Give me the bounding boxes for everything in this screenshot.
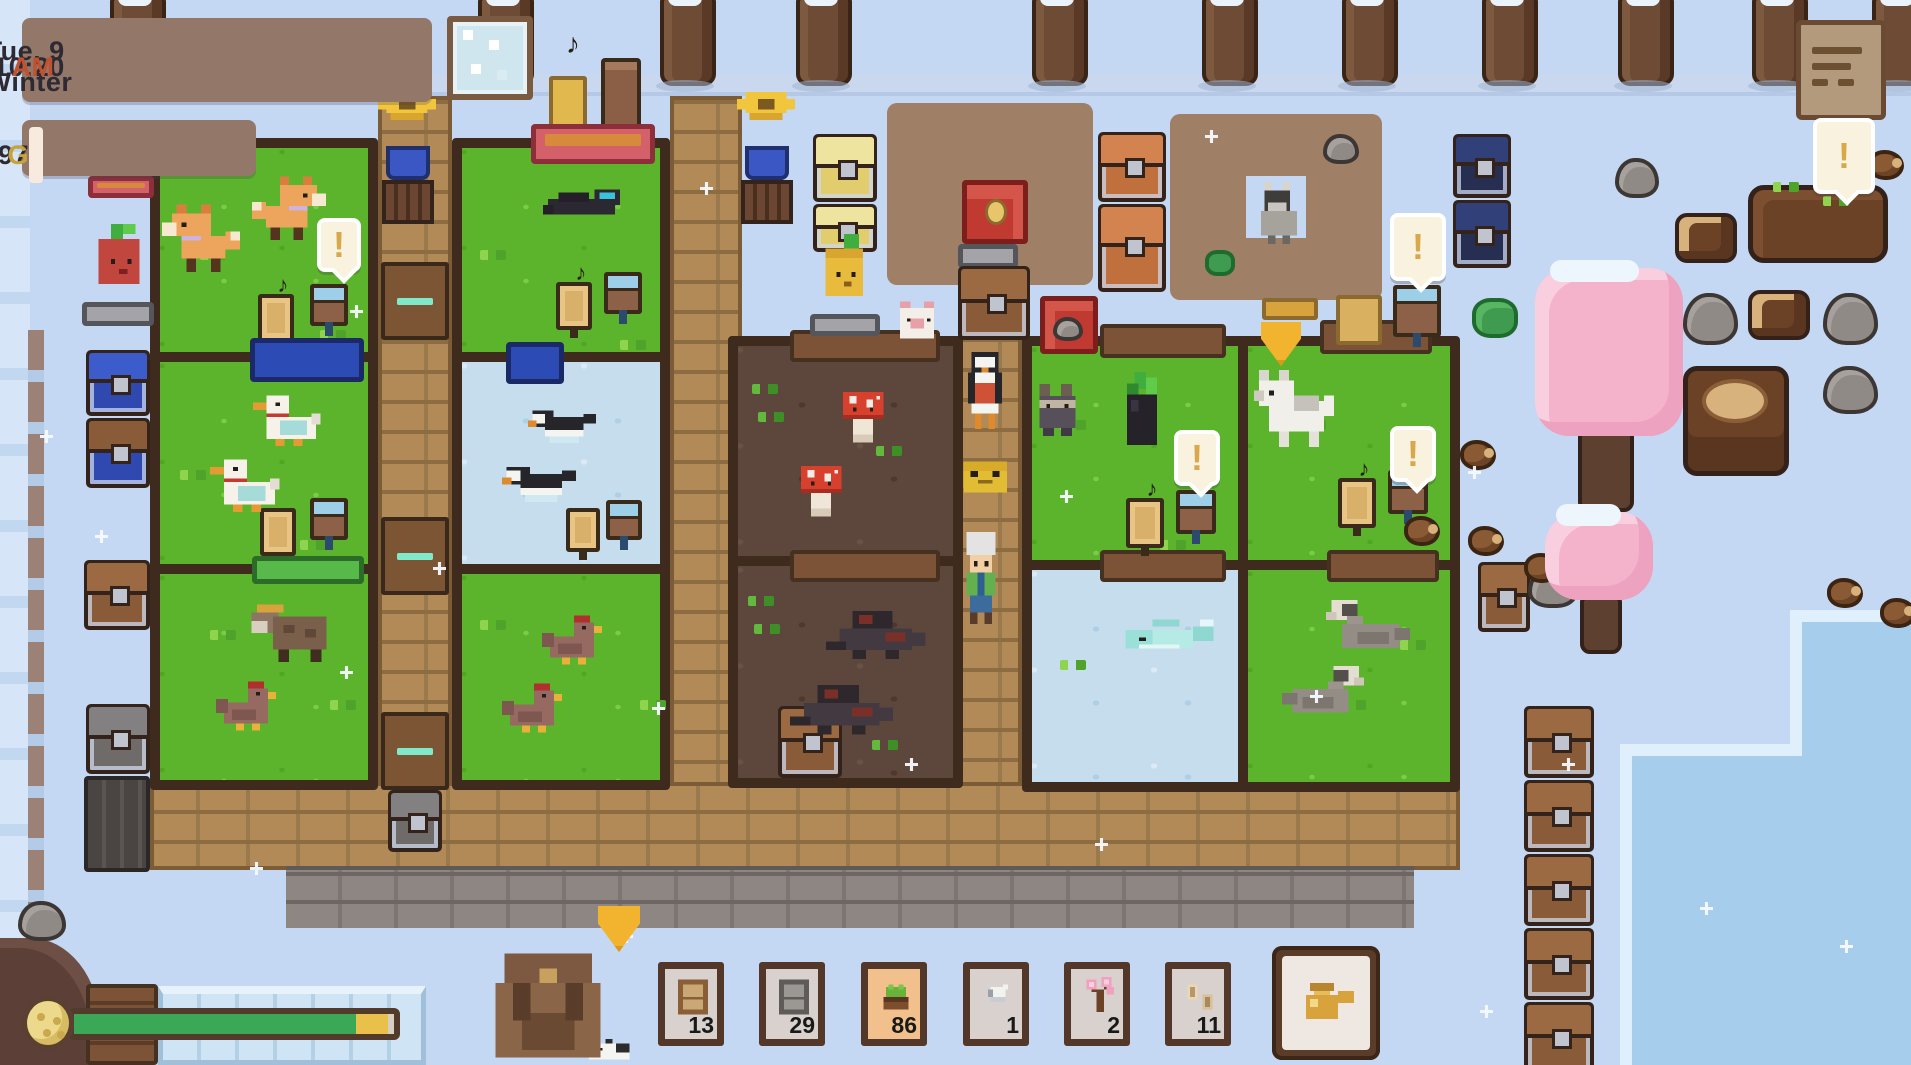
stone-door[interactable] — [84, 776, 150, 872]
water-dispenser[interactable] — [310, 284, 348, 326]
fence-gate[interactable] — [381, 712, 449, 790]
chest[interactable] — [1098, 132, 1166, 202]
mushroom-creature[interactable] — [836, 388, 890, 450]
watering-can-icon — [1294, 971, 1358, 1035]
water-dispenser[interactable] — [310, 498, 348, 540]
hotbar-slot-2[interactable]: 29 — [759, 962, 825, 1046]
dark-dragon[interactable] — [790, 676, 900, 748]
fence-gate[interactable] — [381, 262, 449, 340]
feed-trough-red[interactable] — [88, 176, 154, 198]
currency-label: G — [7, 140, 29, 171]
cherry-blossom-tree[interactable] — [1535, 268, 1683, 436]
chicken[interactable] — [538, 612, 602, 668]
hotbar-slot-4[interactable]: 1 — [963, 962, 1029, 1046]
cherry-tree-trunk — [1578, 424, 1634, 512]
rock — [1615, 158, 1659, 198]
acorn — [1404, 516, 1440, 546]
acorn — [1468, 526, 1504, 556]
game-viewport: ♪ ! ♪ ♪ — [0, 0, 1911, 1065]
alert-bubble[interactable]: ! — [317, 218, 361, 272]
grass-tuft — [752, 384, 778, 394]
black-critter[interactable] — [543, 180, 625, 230]
hotbar-slot-3[interactable]: 86 — [861, 962, 927, 1046]
sparkle — [95, 530, 108, 543]
pen-mushrooms — [728, 336, 963, 568]
radish-creature[interactable] — [86, 224, 152, 304]
pineapple-cat[interactable] — [814, 234, 874, 310]
duck[interactable] — [210, 452, 284, 512]
chest[interactable] — [1453, 200, 1511, 268]
grass-tuft — [754, 624, 780, 634]
music-note: ♪ — [566, 28, 580, 60]
water-dispenser[interactable] — [606, 500, 642, 540]
planter-stand — [382, 180, 434, 224]
goose[interactable] — [1282, 662, 1364, 724]
grass-tuft — [180, 470, 206, 480]
fence-gate[interactable] — [381, 517, 449, 595]
chest[interactable] — [1098, 204, 1166, 292]
gold-tray — [1262, 298, 1318, 320]
acorn — [1827, 578, 1863, 608]
stone-path — [286, 866, 1414, 928]
gray-goat[interactable] — [1250, 182, 1308, 248]
white-flower-item-icon — [978, 977, 1018, 1017]
sunflower-planter[interactable] — [733, 92, 799, 148]
blue-pot — [386, 146, 430, 180]
water-trough[interactable] — [250, 338, 364, 382]
rock-icon — [1053, 317, 1083, 341]
chest[interactable] — [1453, 134, 1511, 198]
penguin[interactable] — [958, 352, 1012, 434]
yellow-frog[interactable] — [956, 452, 1014, 502]
water-trough[interactable] — [506, 342, 564, 384]
feed-sign[interactable]: ♪ — [1126, 498, 1164, 548]
fox[interactable] — [252, 172, 326, 240]
chest[interactable] — [388, 790, 442, 852]
hotbar-slot-5[interactable]: 2 — [1064, 962, 1130, 1046]
acorn — [1880, 598, 1911, 628]
clover-bush — [1205, 250, 1235, 276]
grass-tuft — [748, 596, 774, 606]
water-dispenser[interactable] — [604, 272, 642, 314]
blue-pot — [745, 146, 789, 180]
water-dispenser[interactable] — [1176, 490, 1216, 534]
wooden-door-item-icon — [673, 977, 713, 1017]
chest[interactable] — [1524, 706, 1594, 778]
chest[interactable] — [1478, 562, 1530, 632]
grass-tuft — [300, 540, 326, 550]
chicken[interactable] — [212, 678, 276, 734]
alert-bubble[interactable]: ! — [1813, 118, 1875, 194]
feed-sign[interactable]: ♪ — [556, 282, 592, 330]
fallen-log[interactable] — [1748, 185, 1888, 263]
tree-trunk[interactable] — [796, 0, 852, 86]
gold-trim-chest[interactable] — [958, 266, 1030, 340]
silver-trough[interactable] — [958, 244, 1018, 268]
rock-sign[interactable] — [1040, 296, 1098, 354]
rock — [1683, 293, 1738, 345]
music-note: ♪ — [277, 272, 288, 298]
feed-trough-green[interactable] — [252, 556, 364, 584]
tree-trunk[interactable] — [660, 0, 716, 86]
pen-headboard — [1327, 550, 1439, 582]
tree-stump[interactable] — [1683, 366, 1789, 476]
shop-banner[interactable] — [962, 180, 1028, 244]
rock — [18, 901, 66, 941]
pen-headboard — [1100, 550, 1226, 582]
energy-fill — [74, 1014, 356, 1034]
tree-trunk[interactable] — [1482, 0, 1538, 86]
pen-headboard — [1100, 324, 1226, 358]
sand-crate — [1336, 295, 1382, 345]
pen-chickens — [452, 564, 670, 790]
alert-bubble[interactable]: ! — [1174, 430, 1220, 486]
pen-headboard — [790, 550, 940, 582]
feed-trough-red[interactable] — [531, 124, 655, 164]
brown-pot[interactable] — [601, 58, 641, 128]
pig[interactable] — [890, 298, 944, 352]
cherry-tree-trunk — [1580, 596, 1622, 654]
feed-sign[interactable]: ♪ — [258, 294, 294, 342]
player-character[interactable] — [952, 532, 1010, 624]
feed-sign[interactable]: ♪ — [1338, 478, 1376, 528]
pen-dragons — [728, 556, 963, 788]
coin-emblem — [985, 199, 1007, 225]
chest[interactable] — [1524, 1002, 1594, 1065]
black-plant-creature[interactable] — [1112, 372, 1172, 462]
hotbar-slot-1[interactable]: 13 — [658, 962, 724, 1046]
stump-rings — [1702, 379, 1768, 423]
watering-can-sign[interactable] — [1272, 946, 1380, 1060]
grass-tuft — [758, 412, 784, 422]
music-note: ♪ — [1147, 476, 1158, 502]
acorn — [1460, 440, 1496, 470]
white-wolf[interactable] — [1254, 370, 1334, 452]
energy-coin-icon — [22, 996, 74, 1050]
grass-tuft — [480, 250, 506, 260]
ice-fish[interactable] — [1112, 612, 1220, 670]
pen-fish-water — [1022, 560, 1248, 792]
hay-box[interactable] — [549, 76, 587, 128]
energy-bar — [68, 1008, 400, 1040]
chest[interactable] — [813, 134, 877, 202]
notice-board[interactable] — [1796, 20, 1886, 120]
chest[interactable] — [84, 560, 150, 630]
green-bush — [1472, 298, 1518, 338]
duck[interactable] — [253, 388, 325, 446]
bat-cat[interactable] — [1032, 380, 1090, 444]
fox[interactable] — [162, 200, 240, 272]
ice-mirror[interactable] — [447, 16, 533, 100]
chest[interactable] — [86, 704, 150, 774]
small-log — [1748, 290, 1810, 340]
rock — [1323, 134, 1359, 164]
goose[interactable] — [1326, 596, 1410, 660]
mushroom-creature[interactable] — [794, 462, 848, 524]
grass-tuft — [1060, 660, 1086, 670]
seed-pouch-item-icon — [1180, 977, 1220, 1017]
cherry-blossom-tree-small[interactable] — [1545, 512, 1653, 600]
datetime-panel: Tue, 9 Winter 10:20 AM — [22, 18, 432, 102]
dark-dragon[interactable] — [826, 602, 932, 672]
tree-trunk[interactable] — [1618, 0, 1674, 86]
feed-sign[interactable] — [260, 508, 296, 556]
rock — [1823, 366, 1878, 414]
tree-trunk[interactable] — [1202, 0, 1258, 86]
grass-tuft — [480, 620, 506, 630]
alert-bubble[interactable]: ! — [1390, 426, 1436, 482]
ram[interactable] — [246, 596, 332, 662]
hotbar-slot-6[interactable]: 11 — [1165, 962, 1231, 1046]
grass-tuft — [210, 630, 236, 640]
chicken[interactable] — [498, 680, 562, 736]
puffin[interactable] — [502, 460, 576, 516]
tree-trunk[interactable] — [1032, 0, 1088, 86]
tree-trunk[interactable] — [1342, 0, 1398, 86]
grass-tuft — [330, 700, 356, 710]
stone-door-item-icon — [774, 977, 814, 1017]
energy-tip — [356, 1014, 388, 1034]
chest[interactable] — [1524, 928, 1594, 1000]
music-note: ♪ — [575, 260, 586, 286]
chest[interactable] — [86, 418, 150, 488]
silver-trough[interactable] — [810, 314, 880, 336]
sparkle — [1480, 1005, 1493, 1018]
chest[interactable] — [1524, 854, 1594, 926]
cliff-edge — [28, 330, 44, 910]
planter-stand — [741, 180, 793, 224]
money-panel: 356997 G — [22, 120, 256, 176]
sakura-sapling-item-icon — [1079, 977, 1119, 1017]
moss-tuft — [1773, 182, 1799, 192]
small-log — [1675, 213, 1737, 263]
chest[interactable] — [1524, 780, 1594, 852]
grass-tuft — [620, 340, 646, 350]
alert-bubble[interactable]: ! — [1390, 213, 1446, 281]
music-note: ♪ — [1359, 456, 1370, 482]
backpack-icon[interactable] — [478, 946, 618, 1065]
rock — [1823, 293, 1878, 345]
water-dispenser[interactable] — [1393, 285, 1441, 337]
silver-trough[interactable] — [82, 302, 154, 326]
path-bottom-band — [150, 782, 1460, 870]
chest[interactable] — [86, 350, 150, 416]
meridiem-label: AM — [12, 52, 55, 83]
puffin[interactable] — [528, 404, 596, 456]
feed-trough-item-icon — [876, 977, 916, 1017]
